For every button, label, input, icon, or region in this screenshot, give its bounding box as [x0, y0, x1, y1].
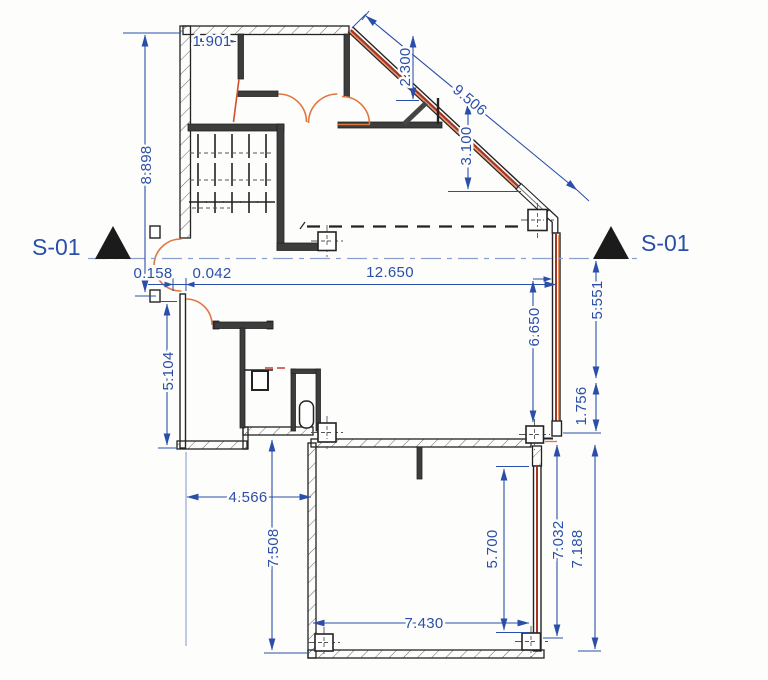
dim-room-height-a: 7.032: [550, 520, 567, 559]
dim-diagonal-length: 9.506: [449, 81, 490, 119]
lower-room-top-wall: [311, 439, 531, 447]
columns: [308, 203, 554, 658]
stair-treads: [189, 134, 275, 213]
section-label-left: S-01: [32, 234, 81, 260]
section-label-right: S-01: [641, 230, 690, 256]
dim-entry-offset-b: 0.042: [192, 265, 231, 282]
single-door-arc: [342, 97, 370, 125]
lower-room-bottom-wall: [308, 650, 544, 658]
dim-room-inner-height: 5.700: [484, 529, 501, 568]
partition-door-leaf: [234, 79, 240, 122]
wc-right-wall: [316, 369, 321, 431]
dim-diagonal-offset-top: 2.300: [397, 47, 414, 86]
left-lower-wall: [180, 294, 186, 448]
dim-right-lower-offset: 1.756: [573, 386, 590, 425]
top-right-room-wall: [344, 34, 350, 97]
angled-wall-connector: [404, 103, 426, 124]
stair-bottom-wall: [277, 243, 322, 251]
top-room-partition: [238, 34, 244, 79]
diagonal-glazed-wall: [348, 27, 558, 233]
section-markers: S-01 S-01: [32, 226, 690, 260]
dim-right-upper-height: 5.551: [589, 280, 606, 319]
left-exterior-wall: [180, 26, 191, 238]
column: [311, 225, 343, 257]
right-wall-stub: [533, 446, 542, 466]
lower-room-stub-wall: [417, 447, 422, 479]
section-arrow-right: [593, 226, 629, 259]
double-door-right-arc: [309, 94, 338, 123]
dim-left-room-height: 5.104: [160, 351, 177, 390]
toilet: [300, 401, 314, 428]
section-arrow-left: [95, 226, 131, 259]
entry-door-jamb-top: [150, 226, 160, 238]
dim-top-room-width: 1.901: [192, 33, 231, 50]
room-door-arc: [186, 299, 212, 325]
glazing-red-line: [351, 30, 519, 187]
top-hall-wall: [238, 91, 278, 97]
floor-plan-page: S-01 S-01: [0, 0, 768, 680]
lower-left-wall: [177, 441, 247, 449]
bath-top-wall: [214, 322, 273, 329]
bath-partition: [240, 328, 245, 428]
glazed-wall-cap: [552, 421, 562, 436]
lower-room-left-wall: [308, 443, 316, 658]
dim-entry-offset-a: 0.158: [133, 265, 172, 282]
bath-fixtures: [244, 370, 314, 428]
double-door-left-arc: [279, 94, 307, 122]
bath-block-bottom-wall: [243, 427, 313, 435]
glazing-orange-line: [350, 32, 518, 189]
entry-door-leaf-top: [154, 239, 182, 265]
dim-left-height: 8.898: [138, 145, 155, 184]
dim-room-inner-width: 7.430: [404, 615, 443, 632]
stair-top-wall: [188, 124, 284, 131]
sink: [252, 371, 268, 390]
dim-terrace-height: 7.508: [265, 528, 282, 567]
column: [521, 203, 554, 238]
wc-left-wall: [291, 369, 296, 431]
dim-room-height-b: 7.188: [569, 529, 586, 568]
stair-right-wall: [277, 124, 284, 250]
floor-plan-canvas: S-01 S-01: [0, 0, 768, 680]
dim-terrace-width: 4.566: [228, 489, 267, 506]
dim-diagonal-offset-mid: 3.100: [458, 126, 475, 165]
dim-glazed-wall-height: 6.650: [526, 307, 543, 346]
dim-hall-width: 12.650: [366, 264, 414, 281]
